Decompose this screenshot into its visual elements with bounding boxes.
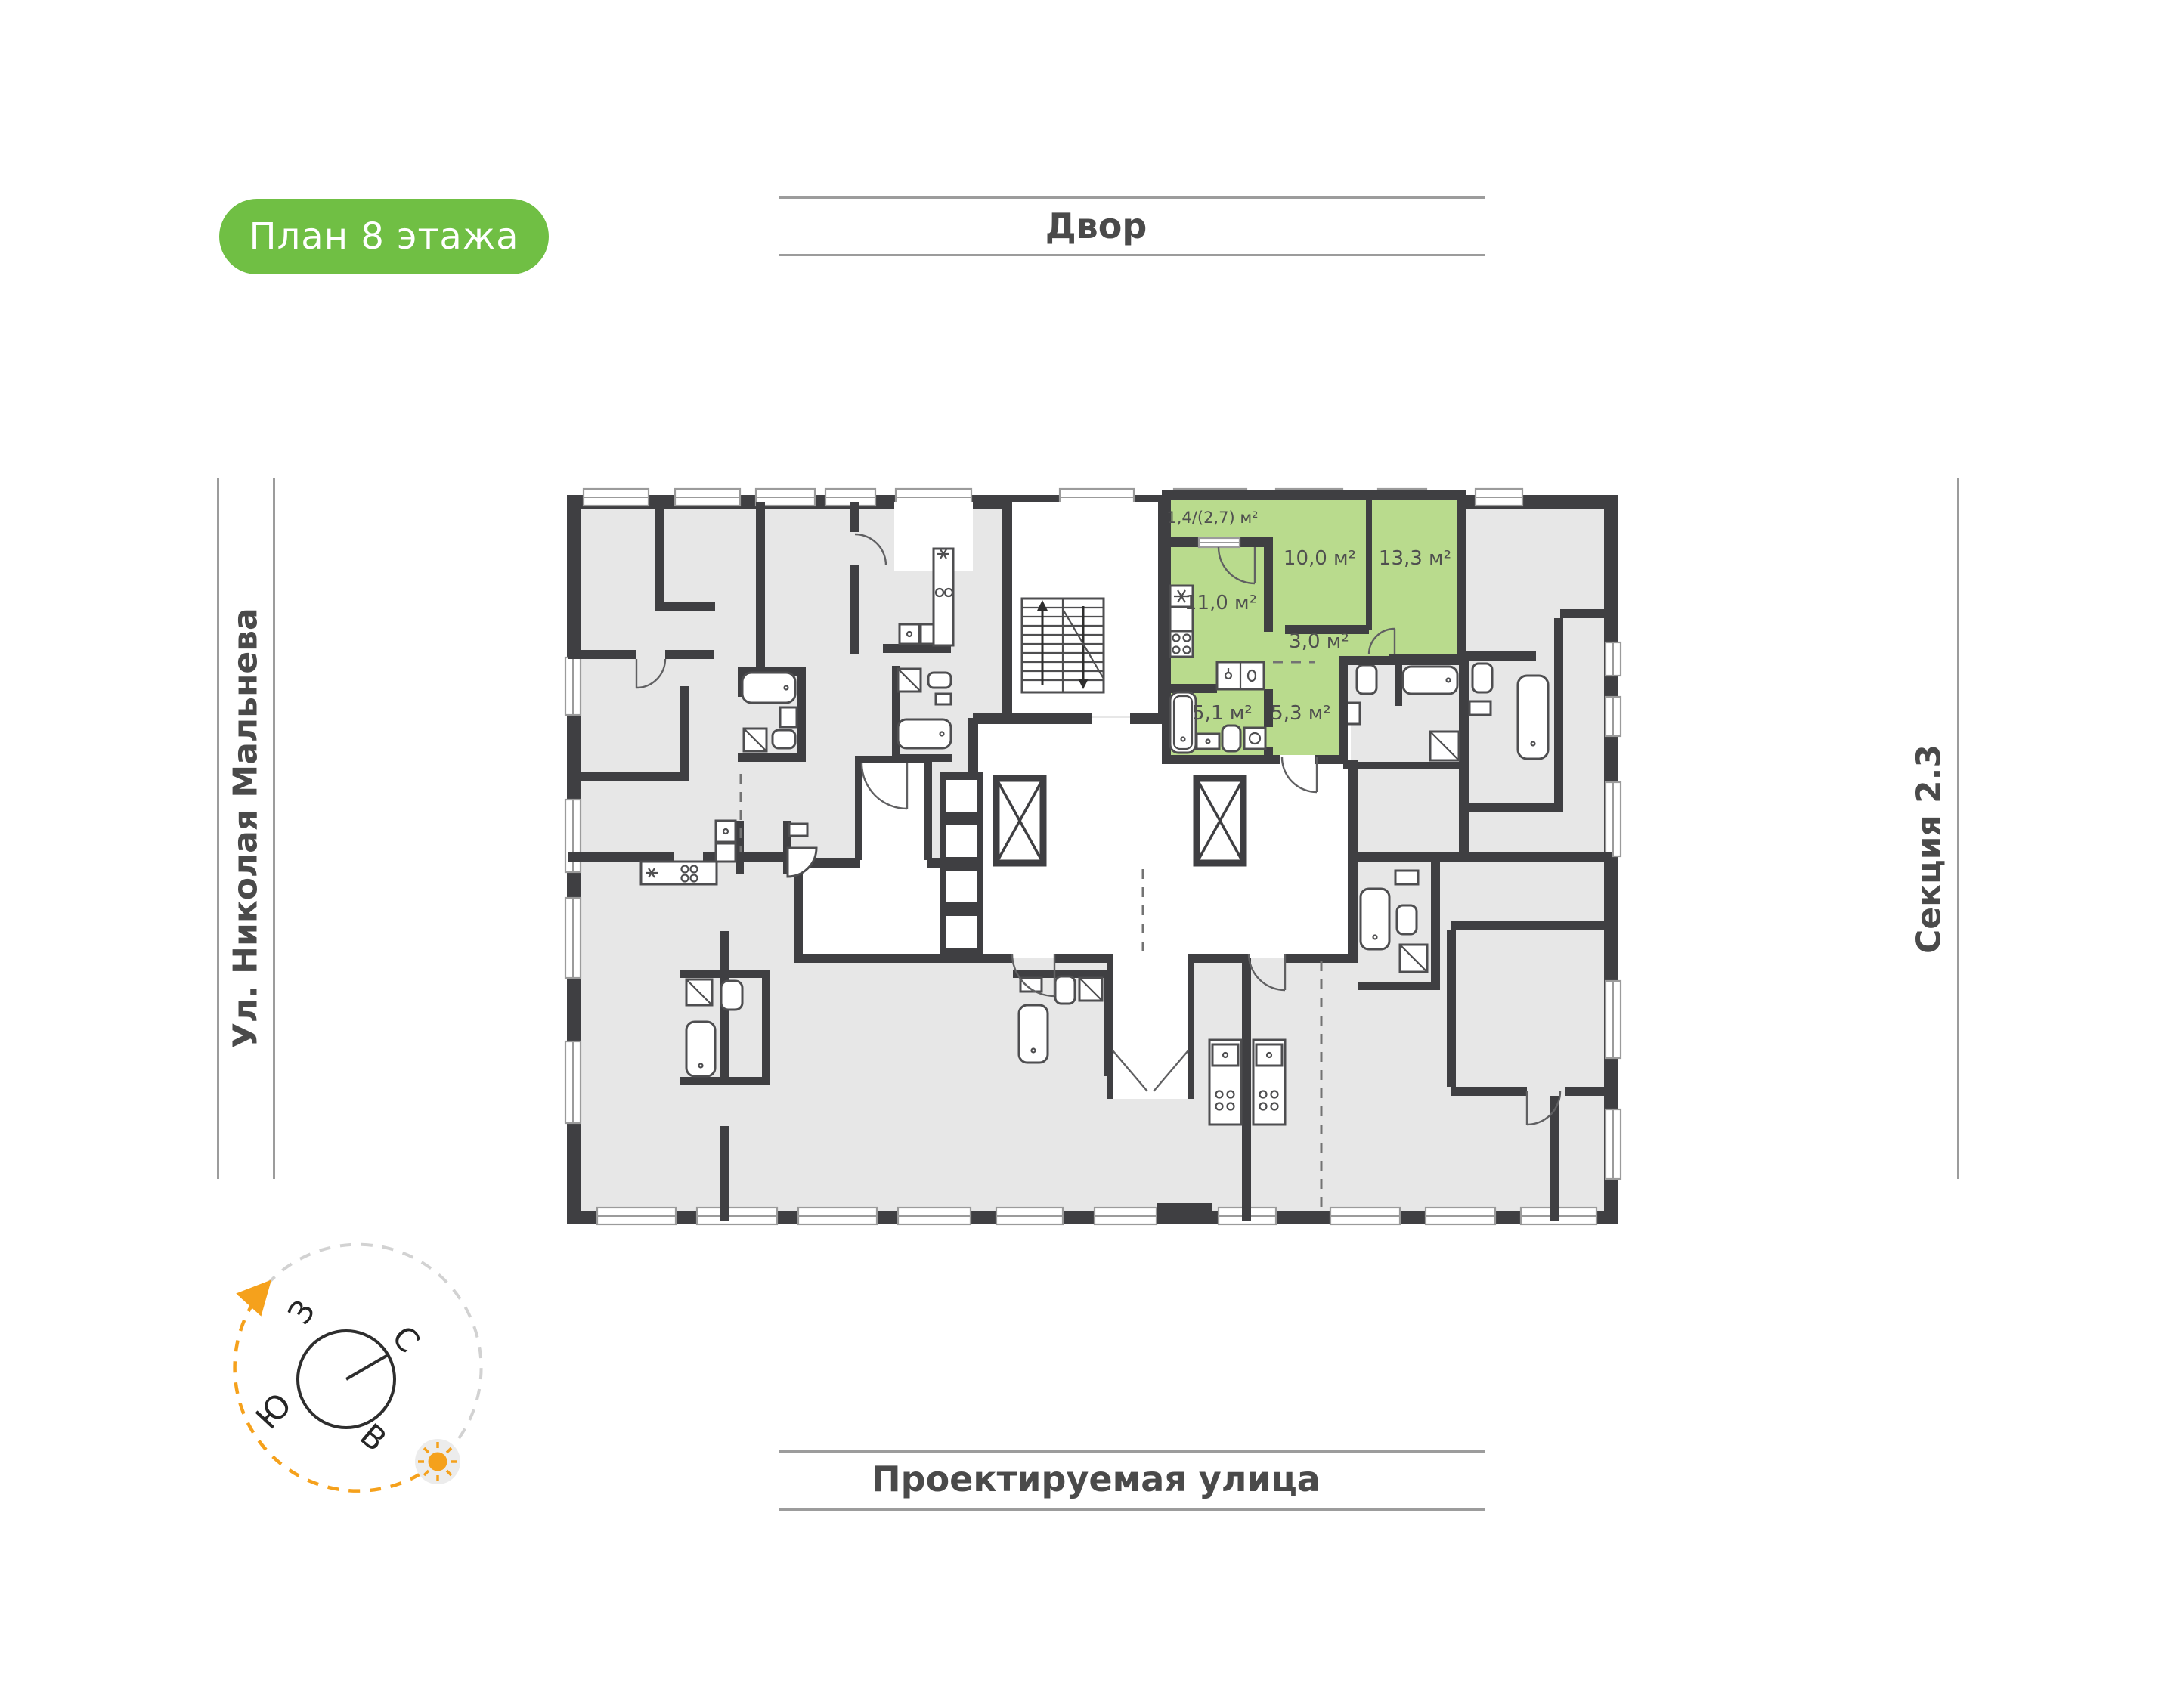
room-label-balcony: 1,4/(2,7) м² [1166,509,1258,527]
floor-plan-svg [0,0,2177,1708]
compass [235,1245,482,1491]
room-label-bathroom: 5,1 м² [1192,702,1253,725]
sun-icon [415,1439,460,1484]
stairs [1022,599,1104,692]
room-label-hallway: 3,0 м² [1289,630,1349,653]
building [565,489,1621,1224]
room-label-room10: 10,0 м² [1284,547,1356,570]
elevator-right [1197,778,1243,863]
room-label-room13: 13,3 м² [1379,547,1451,570]
vent-shaft [940,772,983,960]
room-label-kitchen: 11,0 м² [1184,592,1257,614]
room-label-hall: 5,3 м² [1271,702,1331,725]
elevator-left [996,778,1043,863]
floor-plan-page: План 8 этажа Двор Проектируемая улица Ул… [0,0,2177,1708]
